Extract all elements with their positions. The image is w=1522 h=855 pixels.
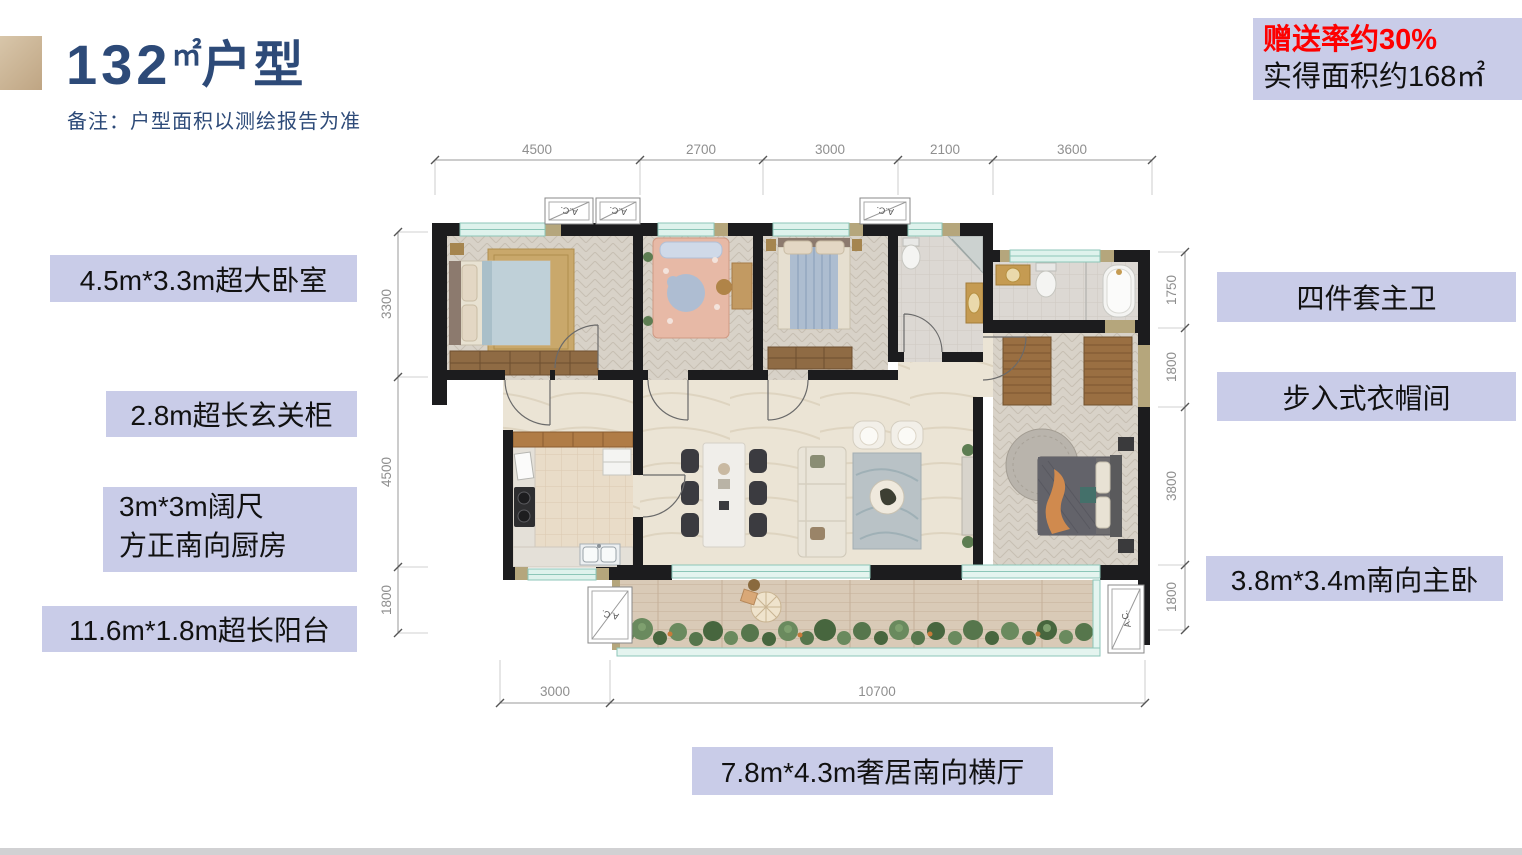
floorplan-flyer: 132㎡户型 备注：户型面积以测绘报告为准 赠送率约30% 实得面积约168㎡ …: [0, 0, 1522, 855]
disclaimer-note: 备注：户型面积以测绘报告为准: [67, 105, 361, 134]
nightstand: [852, 239, 862, 251]
ac-unit: A.C.: [596, 198, 640, 224]
accent-block: [0, 36, 42, 90]
svg-text:A.C.: A.C.: [609, 205, 628, 217]
label-cloakroom: 步入式衣帽间: [1217, 372, 1516, 421]
floor-plan-svg: A.C. A.C. A.C. A.C.: [370, 135, 1200, 730]
dim-right-1: 1750: [1164, 275, 1179, 305]
faucet: [1116, 269, 1122, 275]
nightstand: [1118, 437, 1134, 451]
pillow: [1096, 497, 1110, 528]
corridor-floor: [898, 362, 983, 380]
dim-top-2: 2700: [686, 142, 716, 157]
pillow: [1096, 462, 1110, 493]
dim-left-2: 4500: [379, 457, 394, 487]
pillow: [784, 241, 812, 254]
bedroom3-furniture: [766, 238, 862, 369]
suite-entry-floor: [983, 333, 993, 397]
label-master-bath: 四件套主卫: [1217, 272, 1516, 322]
bed-runner: [1080, 487, 1096, 503]
toilet: [902, 245, 920, 269]
label-foyer-cabinet: 2.8m超长玄关柜: [106, 391, 357, 437]
dim-top-1: 4500: [522, 142, 552, 157]
sofa-cushion: [810, 455, 825, 468]
faucet: [597, 544, 601, 548]
dining-chair: [749, 481, 767, 505]
ac-unit: A.C.: [1108, 585, 1144, 653]
pillow: [462, 265, 477, 301]
master-headboard: [1110, 455, 1122, 537]
dim-bottom-2: 10700: [858, 684, 896, 699]
sink: [1006, 268, 1020, 282]
label-big-bedroom: 4.5m*3.3m超大卧室: [50, 255, 357, 302]
dim-right-4: 1800: [1164, 582, 1179, 612]
pillow: [462, 305, 477, 341]
label-kitchen-line2: 方正南向厨房: [119, 526, 287, 565]
dim-right-3: 3800: [1164, 471, 1179, 501]
title-area-unit: ㎡: [171, 39, 201, 72]
label-master-bedroom: 3.8m*3.4m南向主卧: [1206, 556, 1503, 601]
dim-right-2: 1800: [1164, 352, 1179, 382]
dim-top-5: 3600: [1057, 142, 1087, 157]
dim-top-4: 2100: [930, 142, 960, 157]
pillow: [816, 241, 844, 254]
floor-plan: A.C. A.C. A.C. A.C.: [370, 135, 1200, 730]
dim-top-3: 3000: [815, 142, 845, 157]
sofa-cushion: [810, 527, 825, 540]
svg-text:A.C.: A.C.: [560, 205, 579, 217]
nightstand: [1118, 539, 1134, 553]
label-kitchen: 3m*3m阔尺 方正南向厨房: [103, 487, 357, 572]
plant-icon: [643, 252, 653, 262]
actual-area-text: 实得面积约168㎡: [1263, 59, 1522, 96]
kid-chair: [716, 279, 732, 295]
nightstand: [766, 239, 776, 251]
cutting-board: [514, 452, 533, 480]
kid-pillow: [660, 242, 722, 258]
ac-unit: A.C.: [588, 587, 632, 643]
dim-bottom-1: 3000: [540, 684, 570, 699]
dining-chair: [681, 513, 699, 537]
dining-chair: [681, 449, 699, 473]
plant-icon: [962, 536, 974, 548]
svg-text:A.C.: A.C.: [876, 205, 895, 217]
label-balcony: 11.6m*1.8m超长阳台: [42, 606, 357, 652]
plant-icon: [643, 316, 653, 326]
toilet: [1036, 271, 1056, 297]
label-living-hall: 7.8m*4.3m奢居南向横厅: [692, 747, 1053, 795]
page-title: 132㎡户型: [66, 36, 305, 94]
ac-unit: A.C.: [545, 198, 593, 224]
label-kitchen-line1: 3m*3m阔尺: [119, 487, 264, 526]
bedroom1-headboard: [449, 261, 461, 345]
dining-chair: [749, 449, 767, 473]
tv-console: [962, 457, 974, 535]
plant-icon: [962, 444, 974, 456]
dim-left-1: 3300: [379, 289, 394, 319]
closet-wardrobe: [1084, 337, 1132, 405]
dining-chair: [749, 513, 767, 537]
kid-desk: [732, 263, 752, 309]
bonus-box: 赠送率约30% 实得面积约168㎡: [1253, 18, 1522, 100]
bonus-rate-text: 赠送率约30%: [1263, 22, 1522, 59]
title-area-number: 132: [66, 33, 171, 96]
dim-left-3: 1800: [379, 585, 394, 615]
title-suffix: 户型: [201, 37, 305, 93]
dining-table: [703, 443, 745, 547]
sink: [968, 293, 980, 313]
bottom-divider-bar: [0, 848, 1522, 855]
bedroom1-stool: [450, 243, 464, 255]
ac-unit: A.C.: [860, 198, 910, 224]
